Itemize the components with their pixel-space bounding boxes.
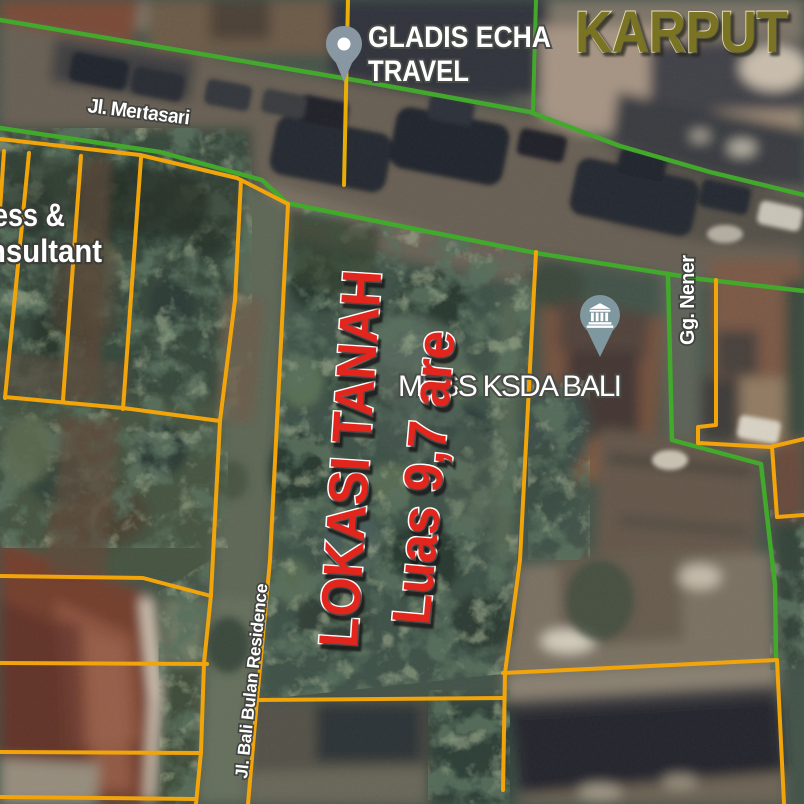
svg-text:Gg. Nener: Gg. Nener: [677, 255, 699, 345]
svg-text:ess &: ess &: [0, 197, 65, 233]
svg-text:KARPUT: KARPUT: [575, 0, 788, 65]
svg-text:TRAVEL: TRAVEL: [368, 55, 469, 88]
svg-text:nsultant: nsultant: [0, 233, 102, 269]
svg-text:GLADIS ECHA: GLADIS ECHA: [368, 21, 551, 54]
